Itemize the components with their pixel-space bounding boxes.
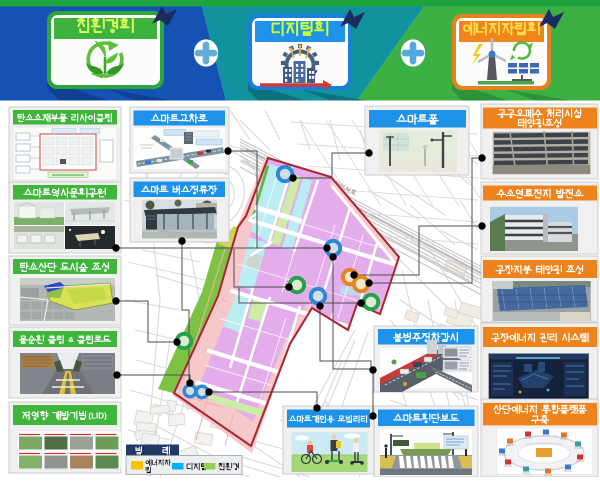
svg-text:&: & — [68, 335, 74, 344]
svg-text:(LID): (LID) — [88, 411, 107, 420]
